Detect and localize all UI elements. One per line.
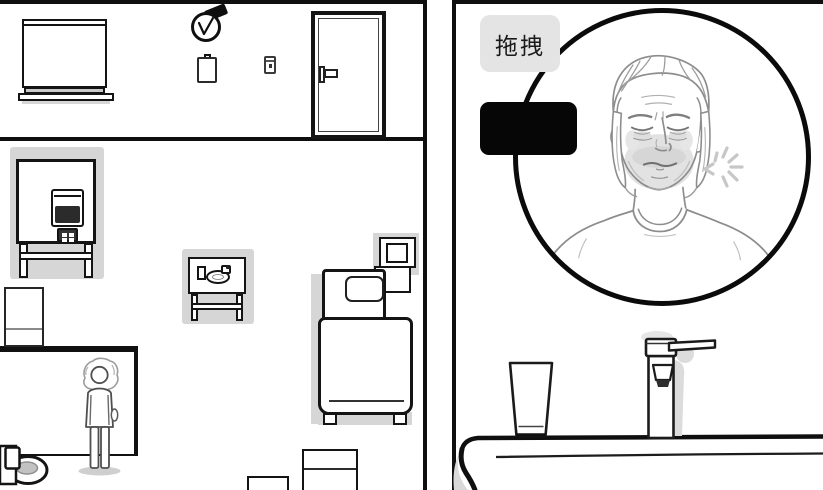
pillow[interactable] — [345, 276, 384, 302]
plate-inner — [212, 274, 224, 280]
faucet-spout-tip — [656, 380, 670, 387]
cabinet-line — [6, 328, 42, 330]
nightstand-item[interactable] — [386, 243, 408, 263]
sink-area — [452, 330, 823, 490]
bed-foot-left — [323, 413, 337, 425]
white-cabinet[interactable] — [4, 287, 44, 347]
tv-screen[interactable] — [55, 206, 80, 223]
window-shadow — [22, 101, 110, 104]
large-box-flap-line — [304, 468, 356, 470]
tv-table-leg-left — [19, 243, 28, 278]
person-leg-left — [91, 427, 99, 468]
faucet-shadow — [674, 360, 684, 436]
small-box[interactable] — [247, 476, 289, 490]
window-sill — [18, 93, 114, 101]
tv-table-leg-right — [84, 243, 93, 278]
tv-button — [69, 233, 74, 237]
faucet-spout — [653, 365, 673, 380]
annoyance-spark — [702, 140, 750, 192]
toilet-lid — [6, 448, 20, 469]
drinking-glass[interactable] — [510, 363, 552, 436]
notepad-paper — [197, 57, 217, 83]
door-handle-icon[interactable] — [324, 69, 338, 78]
sink-counter-fill — [464, 436, 823, 490]
tv-lid-line — [54, 195, 81, 197]
person-shadow — [79, 467, 121, 476]
tv-button — [62, 233, 67, 237]
tv-button — [69, 238, 74, 242]
person-head — [91, 367, 107, 383]
clock-face — [191, 12, 221, 42]
tv-button — [62, 238, 67, 242]
bed-blanket-line — [329, 400, 404, 402]
window-pane — [22, 24, 107, 88]
switch-line — [266, 60, 274, 62]
tv-table-crossbar — [21, 252, 91, 260]
right-panel-top-border — [452, 0, 823, 4]
toilet[interactable] — [0, 443, 52, 490]
side-table-crossbar — [193, 303, 241, 310]
redacted-black-box[interactable] — [480, 102, 577, 155]
drag-label[interactable]: 拖拽 — [480, 15, 560, 72]
faucet-lever[interactable] — [669, 341, 715, 351]
tv-button-panel[interactable] — [57, 228, 78, 242]
cup-spot — [226, 265, 230, 269]
table-glass[interactable] — [197, 266, 206, 280]
clock-hands — [194, 15, 217, 38]
bed-foot-right — [393, 413, 407, 425]
room-overview-panel — [0, 0, 427, 490]
left-panel-top-border — [0, 0, 427, 4]
standing-person[interactable] — [76, 353, 126, 480]
person-hand — [111, 409, 117, 421]
game-screen: 拖拽 — [0, 0, 823, 490]
person-leg-right — [101, 427, 109, 468]
switch-toggle — [269, 64, 272, 68]
